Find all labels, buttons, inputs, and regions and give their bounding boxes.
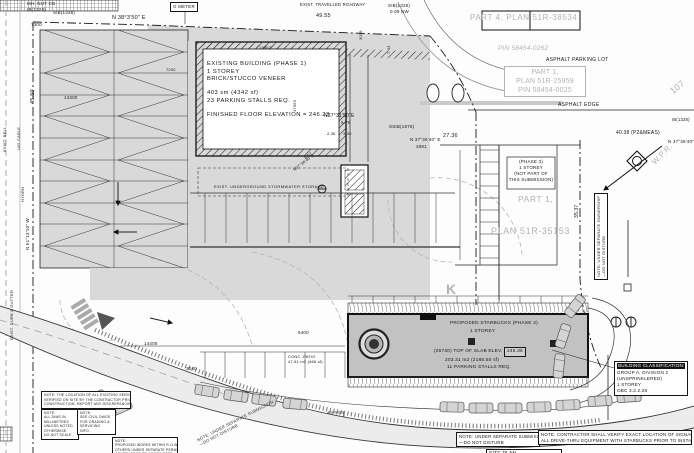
label-mh-nut-cb: MH. NUT CB xyxy=(27,1,55,7)
dim-7200: 7200 xyxy=(166,67,176,72)
label-curb-gutter: EXIST. CURB & GUTTER xyxy=(9,290,14,340)
dim-14300: 14300 xyxy=(64,95,78,101)
dim-2-36: 2.36 xyxy=(327,131,336,136)
label-asphalt-parking-lot: ASPHALT PARKING LOT xyxy=(546,57,609,64)
label-part1-plan-25959: PART 1,PLAN 51R-25959PIN 58454-0025 xyxy=(504,66,586,97)
label-ib-1328: IB(1328) xyxy=(27,7,46,13)
dim-49-55: 49.55 xyxy=(316,13,331,20)
dim-40-38: 40.38 (P2&MEAS) xyxy=(616,130,660,137)
dim-27-36: 27.36 xyxy=(443,133,458,140)
bearing-north-east: N 37°36'40" E xyxy=(668,139,694,145)
label-sib-offset: 0.09 NW xyxy=(390,9,409,15)
label-sib-1328-b: SIB(1328) xyxy=(388,3,410,9)
starbucks-area: 203.31 m2 (2188.50 sf) xyxy=(445,358,499,364)
label-107: 107 xyxy=(668,78,688,97)
dim-35-37: 35.37 xyxy=(574,204,581,218)
label-pin-58454-0262: PIN 58454-0262 xyxy=(498,45,548,53)
annotation-layer: MH. NUT CBIB(1328)SIB(1328)N 38°3'50" EG… xyxy=(0,0,694,453)
note-box-3: NOTE:SEE CIVIL DWGSFOR GRADING &SERVICIN… xyxy=(77,409,116,435)
label-ug-cable: U/G CABLE xyxy=(16,127,21,150)
dim-3-39: 3.39 xyxy=(343,131,352,136)
label-patio: CONC. PATIO47.61 m2 (466 sf) xyxy=(288,354,323,364)
bearing-mid: N 37°36'40" E xyxy=(410,137,441,143)
dim-13867: 13867 xyxy=(259,45,271,50)
note-east-vertical: NOTE: UNDER SEPARATE OWNERSHIP—DO NOT DI… xyxy=(594,193,608,280)
label-ib-1328-right: IB(1328) xyxy=(672,117,690,122)
note-box-2: NOTE:ALL DIMS INMILLIMETRESUNLESS NOTEDO… xyxy=(41,409,79,440)
dim-3019: 3019 xyxy=(358,30,363,40)
dim-7-43: 7.43 xyxy=(386,45,391,54)
label-kiosk: K xyxy=(446,280,456,298)
building-classification: BUILDING CLASSIFICATION:GROUP A, DIVISIO… xyxy=(614,361,688,396)
site-plan-title: SITE PLAN xyxy=(486,449,562,453)
existing-building-label: EXISTING BUILDING (PHASE 1)1 STOREYBRICK… xyxy=(207,61,330,120)
label-wpr: W.P.R. xyxy=(650,142,675,167)
note-box-4: NOTE:PROPOSED WORKS WITHIN R.O.W. BYOTHE… xyxy=(112,437,178,453)
label-sib-1328: SIB(1328) xyxy=(53,10,75,16)
label-part1-mid: PART 1, xyxy=(518,194,553,205)
dim-45-50: 45.50 xyxy=(30,89,37,104)
label-g-meter: G METER xyxy=(170,2,198,12)
starbucks-slab: (25730) TOP OF SLAB ELEV. = xyxy=(434,349,507,355)
note-separate-submission: NOTE: UNDER SEPARATE SUBMISSION—DO NOT D… xyxy=(456,432,540,447)
label-exist-bell: EXIST. BELL xyxy=(2,127,7,152)
phase3-label: (PHASE 3)1 STOREY(NOT PART OFTHIS SUBMIS… xyxy=(508,159,554,182)
label-roadway: EXIST. TRAVELLED ROADWAY xyxy=(300,2,365,7)
label-ssib-1876: SSIB(1876) xyxy=(389,124,414,130)
note-box-1: NOTE: THE LOCATION OF ALL EXISTING SERVI… xyxy=(41,391,131,409)
starbucks-storey: 1 STOREY xyxy=(470,329,495,335)
starbucks-title: PROPOSED STARBUCKS (PHASE 2) xyxy=(450,321,538,327)
dim-14400: 14400 xyxy=(144,341,158,347)
label-asphalt-edge: ASPHALT EDGE xyxy=(558,102,599,109)
note-diagonal: NOTE: UNDER SEPARATE SUBMISSION—DO NOT D… xyxy=(196,399,277,447)
label-plan-35153: PLAN 51R-35153 xyxy=(491,226,570,238)
bearing-west-boundary: N 51°13'10" W xyxy=(25,218,31,250)
starbucks-stalls: 11 PARKING STALLS REQ. xyxy=(447,365,511,371)
site-plan-canvas: MH. NUT CBIB(1328)SIB(1328)N 38°3'50" EG… xyxy=(0,0,694,453)
note-contractor: NOTE: CONTRACTOR SHALL VERIFY EXACT LOCA… xyxy=(538,430,692,445)
dim-3040: 3040 xyxy=(186,366,197,372)
label-stormwater: EXIST. UNDERGROUND STORMWATER STORAGE xyxy=(214,184,324,189)
dim-7300: 7300 xyxy=(31,22,42,28)
dim-5400: 5400 xyxy=(298,330,309,336)
label-hydro: HYDRO xyxy=(20,187,25,202)
dim-5-78: 5.78 xyxy=(341,120,351,126)
dim-3081: 3081 xyxy=(416,144,427,150)
bearing-north-boundary: N 38°3'50" E xyxy=(112,15,146,22)
starbucks-slab-value: 246.36 xyxy=(504,347,526,357)
label-part4-plan: PART 4, PLAN 51R-38534 xyxy=(470,13,577,23)
